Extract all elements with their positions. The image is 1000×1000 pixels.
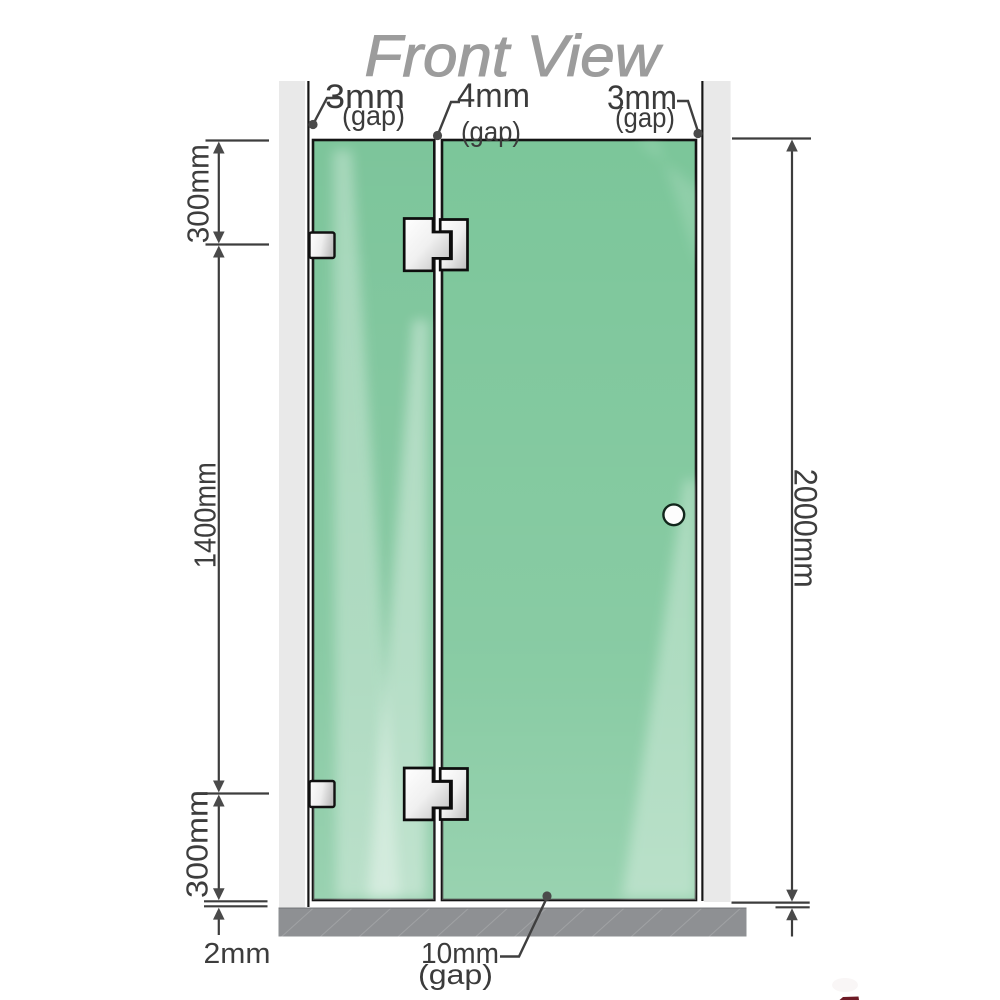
svg-text:2000mm: 2000mm xyxy=(788,469,824,588)
svg-text:(gap): (gap) xyxy=(342,100,405,131)
svg-text:2mm: 2mm xyxy=(204,938,271,970)
svg-text:1400mm: 1400mm xyxy=(188,462,223,568)
svg-text:300mm: 300mm xyxy=(181,144,216,243)
svg-text:(gap): (gap) xyxy=(461,116,521,147)
svg-text:(gap): (gap) xyxy=(615,102,675,133)
svg-text:4mm: 4mm xyxy=(457,77,530,115)
svg-text:300mm: 300mm xyxy=(180,790,215,898)
svg-text:(gap): (gap) xyxy=(418,959,493,990)
